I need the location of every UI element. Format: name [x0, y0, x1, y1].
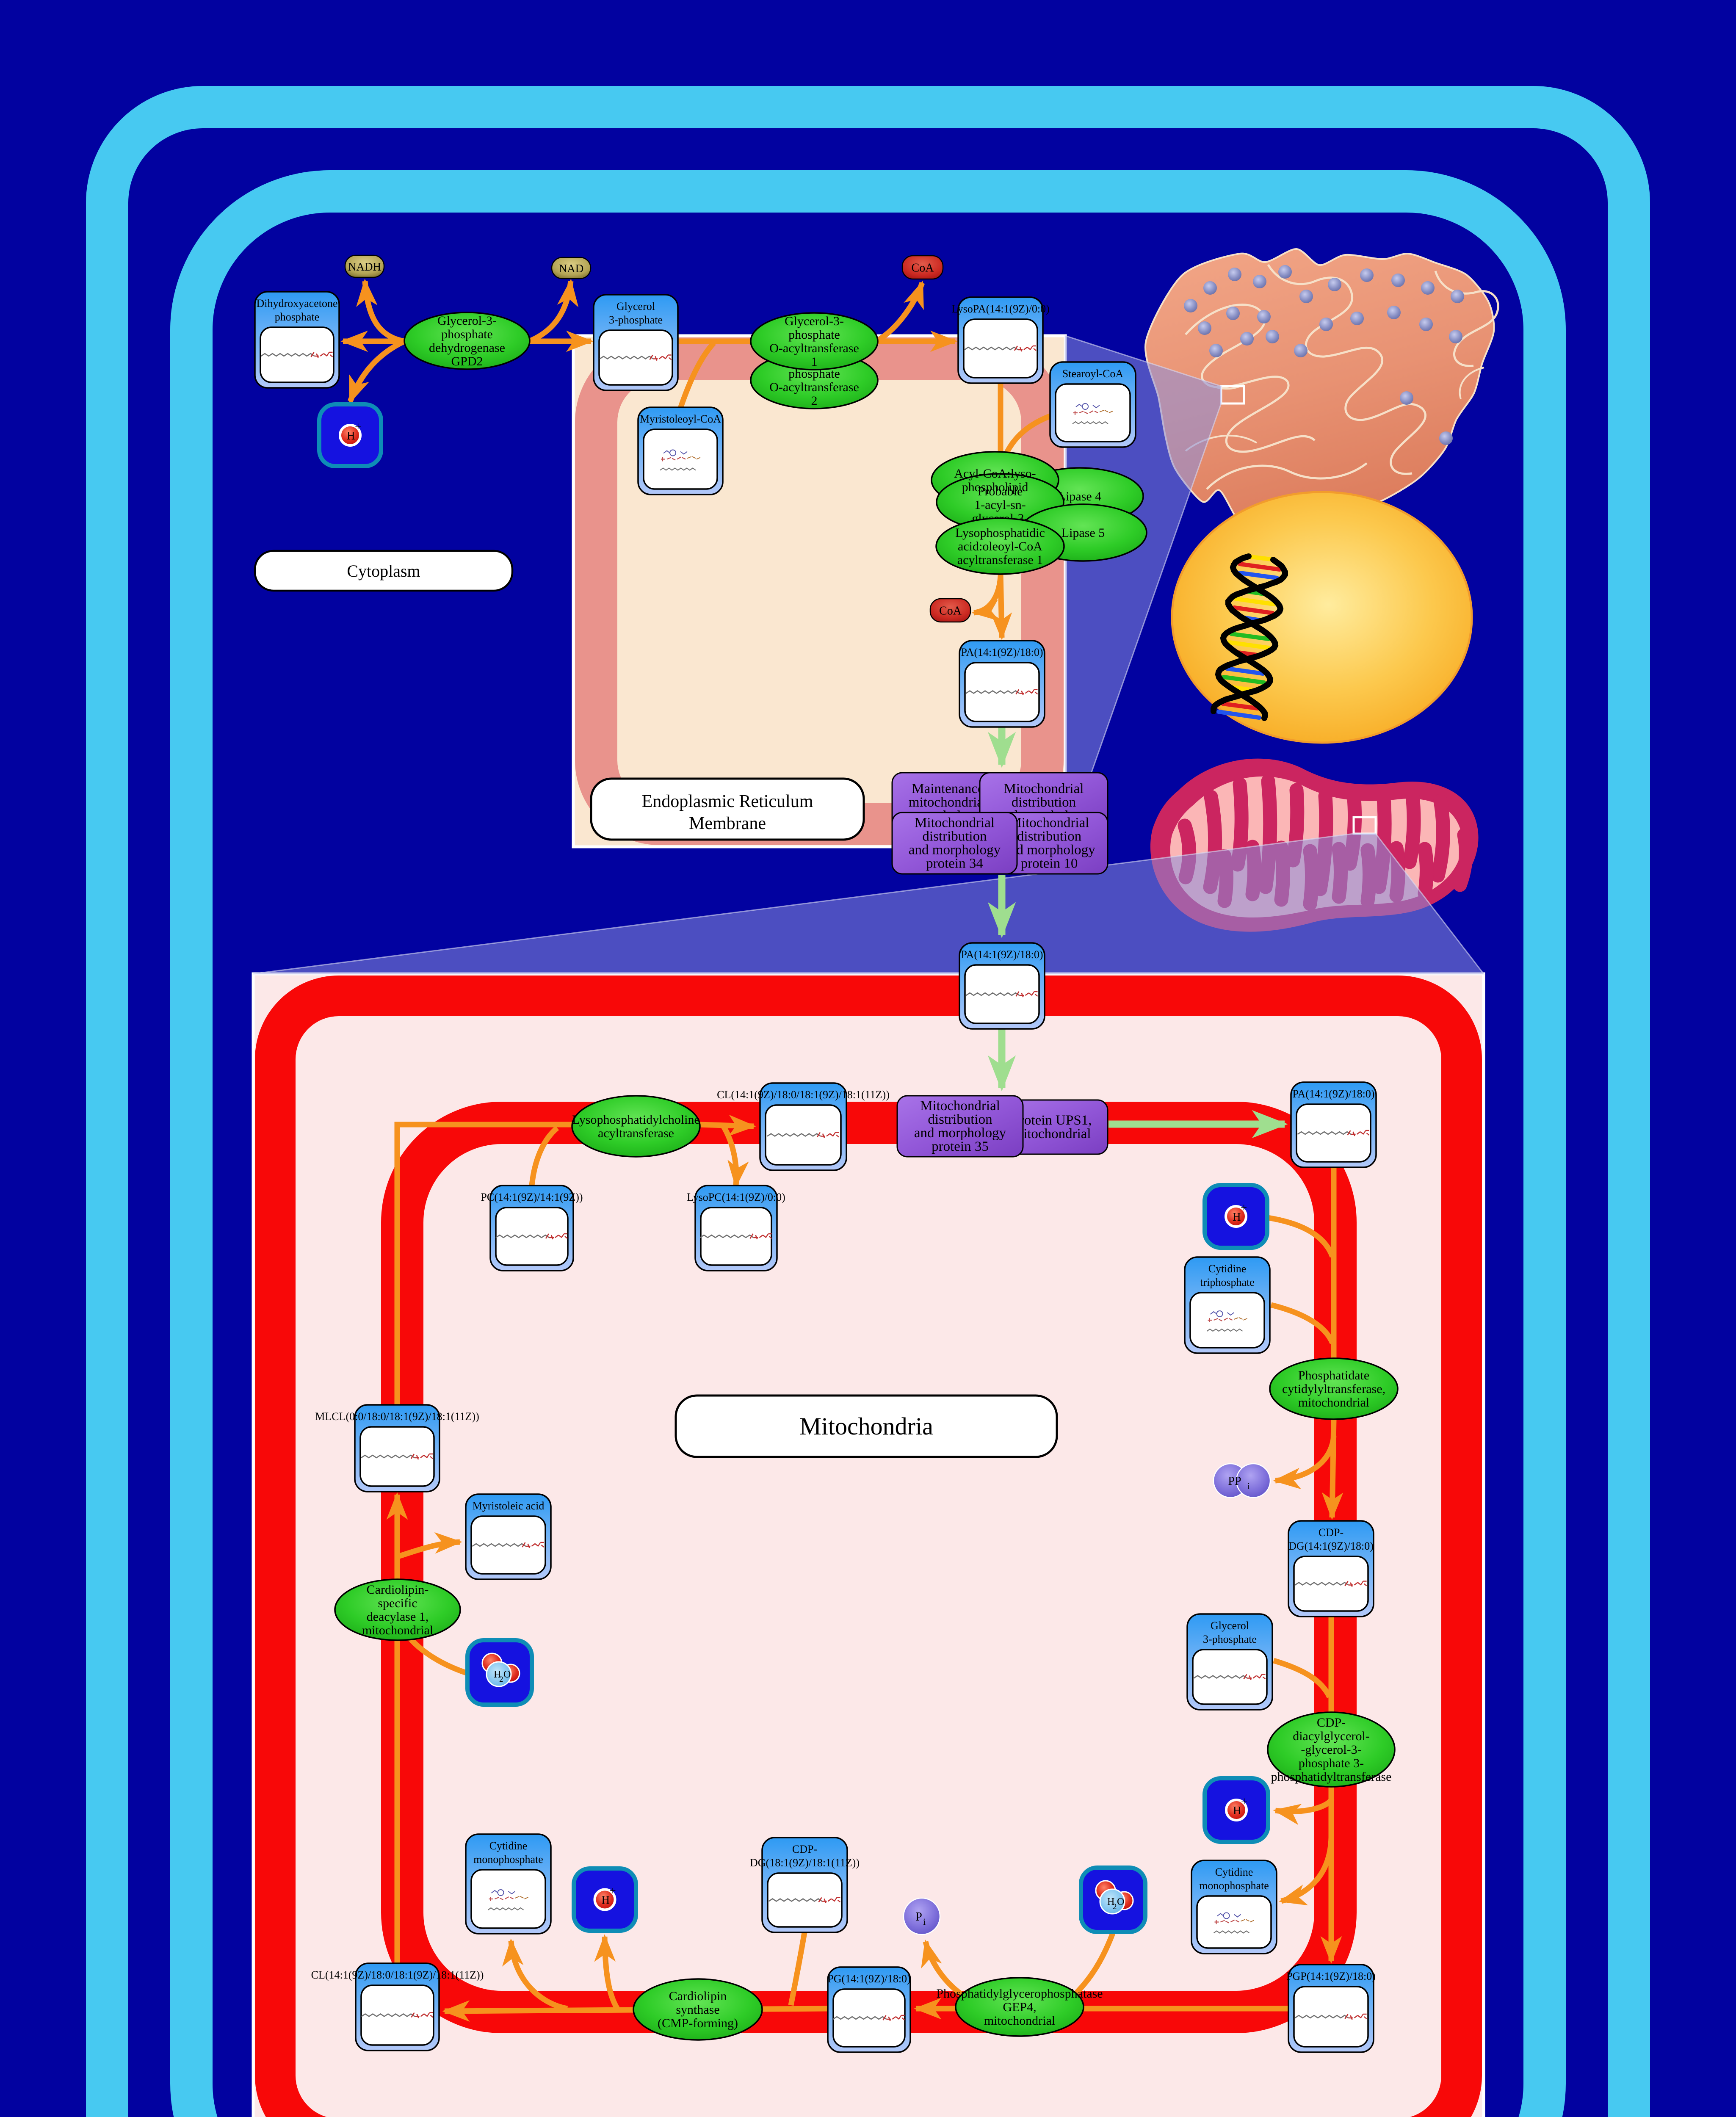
svg-text:i: i [923, 1916, 926, 1927]
svg-text:PC(14:1(9Z)/14:1(9Z)): PC(14:1(9Z)/14:1(9Z)) [481, 1191, 583, 1203]
svg-text:+: + [1241, 1201, 1247, 1214]
svg-text:NAD: NAD [559, 262, 584, 275]
svg-text:protein 35: protein 35 [932, 1139, 989, 1154]
svg-text:Phosphatidylglycerophosphatase: Phosphatidylglycerophosphatase [936, 1987, 1103, 2001]
svg-text:protein 34: protein 34 [926, 856, 983, 871]
svg-text:Cytidine: Cytidine [1215, 1866, 1253, 1878]
svg-text:Mitochondrial: Mitochondrial [915, 815, 995, 831]
svg-text:i: i [1247, 1481, 1250, 1491]
svg-text:NADH: NADH [348, 260, 381, 273]
svg-text:DG(18:1(9Z)/18:1(11Z)): DG(18:1(9Z)/18:1(11Z)) [750, 1857, 860, 1869]
svg-text:Lysophosphatidic: Lysophosphatidic [955, 526, 1045, 540]
svg-text:CDP-: CDP- [792, 1843, 817, 1855]
svg-text:Protein UPS1,: Protein UPS1, [1012, 1113, 1092, 1128]
svg-text:phosphate 3-: phosphate 3- [1299, 1756, 1364, 1770]
svg-text:GPD2: GPD2 [451, 354, 483, 368]
svg-text:Cardiolipin-: Cardiolipin- [367, 1583, 429, 1597]
svg-text:-glycerol-3-: -glycerol-3- [1301, 1743, 1361, 1757]
svg-text:3-phosphate: 3-phosphate [1203, 1633, 1257, 1645]
svg-text:phosphatidyltransferase: phosphatidyltransferase [1271, 1770, 1392, 1784]
svg-text:protein 10: protein 10 [1021, 856, 1078, 871]
svg-text:Membrane: Membrane [689, 814, 766, 833]
svg-text:distribution: distribution [1012, 795, 1076, 810]
svg-text:+: + [1241, 1795, 1247, 1807]
svg-text:Mitochondria: Mitochondria [799, 1412, 933, 1440]
svg-text:Stearoyl-CoA: Stearoyl-CoA [1062, 368, 1124, 380]
svg-text:O: O [503, 1669, 511, 1680]
svg-text:Cytoplasm: Cytoplasm [347, 561, 420, 580]
svg-text:Probable: Probable [978, 484, 1023, 498]
svg-text:PA(14:1(9Z)/18:0): PA(14:1(9Z)/18:0) [961, 948, 1043, 961]
svg-text:CL(14:1(9Z)/18:0/18:1(9Z)/18:1: CL(14:1(9Z)/18:0/18:1(9Z)/18:1(11Z)) [717, 1089, 890, 1101]
svg-text:+: + [355, 420, 361, 433]
svg-text:phosphate: phosphate [788, 328, 840, 342]
svg-text:distribution: distribution [922, 829, 987, 844]
svg-text:CoA: CoA [939, 605, 962, 618]
svg-text:LysoPA(14:1(9Z)/0:0): LysoPA(14:1(9Z)/0:0) [951, 303, 1050, 315]
svg-text:CDP-: CDP- [1319, 1526, 1343, 1539]
svg-text:PP: PP [1228, 1475, 1241, 1488]
svg-text:Acyl-CoA:lyso-: Acyl-CoA:lyso- [954, 467, 1036, 481]
svg-text:2: 2 [811, 394, 818, 408]
svg-text:Cytidine: Cytidine [489, 1840, 528, 1852]
svg-text:3-phosphate: 3-phosphate [609, 314, 663, 326]
svg-text:synthase: synthase [676, 2003, 719, 2017]
svg-text:O-acyltransferase: O-acyltransferase [769, 341, 859, 355]
svg-text:and morphology: and morphology [914, 1125, 1006, 1141]
svg-text:CL(14:1(9Z)/18:0/18:1(9Z)/18:1: CL(14:1(9Z)/18:0/18:1(9Z)/18:1(11Z)) [311, 1969, 484, 1981]
svg-text:Mitochondrial: Mitochondrial [1009, 815, 1089, 831]
svg-text:Cardiolipin: Cardiolipin [669, 1989, 727, 2003]
svg-text:monophosphate: monophosphate [1199, 1879, 1269, 1892]
svg-text:Endoplasmic Reticulum: Endoplasmic Reticulum [642, 792, 813, 811]
svg-text:acid:oleoyl-CoA: acid:oleoyl-CoA [958, 539, 1042, 553]
svg-text:O: O [1117, 1896, 1124, 1907]
svg-text:dehydrogenase: dehydrogenase [429, 341, 505, 355]
svg-text:CDP-: CDP- [1317, 1716, 1346, 1730]
svg-text:Lipase 4: Lipase 4 [1058, 489, 1101, 503]
svg-text:phosphate: phosphate [441, 327, 493, 341]
svg-text:mitochondrial: mitochondrial [1012, 1126, 1091, 1141]
svg-text:O-acyltransferase: O-acyltransferase [769, 380, 859, 394]
svg-text:mitochondrial: mitochondrial [984, 2014, 1055, 2028]
svg-text:PA(14:1(9Z)/18:0): PA(14:1(9Z)/18:0) [1292, 1088, 1374, 1100]
svg-text:mitochondrial: mitochondrial [362, 1623, 433, 1637]
svg-text:GEP4,: GEP4, [1003, 2000, 1036, 2014]
svg-text:triphosphate: triphosphate [1200, 1276, 1255, 1288]
svg-text:Glycerol: Glycerol [616, 300, 655, 312]
svg-text:specific: specific [378, 1596, 417, 1610]
svg-text:DG(14:1(9Z)/18:0): DG(14:1(9Z)/18:0) [1288, 1540, 1374, 1552]
svg-text:PA(14:1(9Z)/18:0): PA(14:1(9Z)/18:0) [961, 646, 1043, 658]
svg-text:MLCL(0:0/18:0/18:1(9Z)/18:1(11: MLCL(0:0/18:0/18:1(9Z)/18:1(11Z)) [315, 1410, 479, 1423]
svg-text:Glycerol-3-: Glycerol-3- [437, 314, 497, 328]
svg-text:H: H [1233, 1804, 1241, 1817]
svg-text:distribution: distribution [928, 1112, 992, 1127]
svg-text:Lysophosphatidylcholine: Lysophosphatidylcholine [572, 1113, 700, 1127]
svg-text:mitochondrial: mitochondrial [909, 795, 987, 810]
svg-text:Myristoleic acid: Myristoleic acid [473, 1500, 545, 1512]
svg-text:Phosphatidate: Phosphatidate [1298, 1368, 1369, 1382]
svg-text:cytidylyltransferase,: cytidylyltransferase, [1282, 1382, 1385, 1396]
svg-text:PG(14:1(9Z)/18:0): PG(14:1(9Z)/18:0) [827, 1973, 910, 1985]
svg-text:distribution: distribution [1017, 829, 1081, 844]
svg-text:phosphate: phosphate [275, 311, 319, 323]
svg-text:Mitochondrial: Mitochondrial [1004, 781, 1084, 796]
svg-text:Glycerol: Glycerol [1211, 1620, 1249, 1632]
svg-text:and morphology: and morphology [909, 843, 1001, 858]
svg-text:mitochondrial: mitochondrial [1298, 1396, 1369, 1409]
svg-text:LysoPC(14:1(9Z)/0:0): LysoPC(14:1(9Z)/0:0) [687, 1191, 785, 1203]
svg-text:1-acyl-sn-: 1-acyl-sn- [974, 498, 1026, 512]
svg-text:+: + [610, 1885, 616, 1897]
svg-text:Mitochondrial: Mitochondrial [920, 1098, 1000, 1114]
svg-text:Maintenance: Maintenance [912, 781, 984, 796]
svg-text:PGP(14:1(9Z)/18:0): PGP(14:1(9Z)/18:0) [1286, 1970, 1376, 1982]
svg-text:CoA: CoA [912, 262, 934, 275]
svg-text:Dihydroxyacetone: Dihydroxyacetone [256, 297, 337, 310]
svg-text:H: H [347, 429, 355, 442]
svg-text:P: P [915, 1910, 922, 1924]
svg-text:(CMP-forming): (CMP-forming) [658, 2016, 738, 2030]
svg-text:diacylglycerol-: diacylglycerol- [1293, 1729, 1370, 1743]
svg-text:H: H [602, 1894, 610, 1907]
svg-text:2: 2 [1113, 1902, 1117, 1911]
svg-text:monophosphate: monophosphate [473, 1853, 543, 1866]
svg-text:Lipase 5: Lipase 5 [1062, 526, 1105, 540]
svg-text:H: H [1233, 1211, 1241, 1223]
svg-text:acyltransferase: acyltransferase [598, 1126, 674, 1140]
svg-text:Myristoleoyl-CoA: Myristoleoyl-CoA [640, 413, 721, 425]
svg-text:Cytidine: Cytidine [1208, 1263, 1247, 1275]
svg-text:1: 1 [811, 355, 818, 369]
svg-text:deacylase 1,: deacylase 1, [367, 1610, 429, 1624]
svg-text:Glycerol-3-: Glycerol-3- [785, 314, 844, 328]
svg-text:2: 2 [499, 1675, 503, 1684]
svg-text:acyltransferase 1: acyltransferase 1 [957, 553, 1043, 567]
